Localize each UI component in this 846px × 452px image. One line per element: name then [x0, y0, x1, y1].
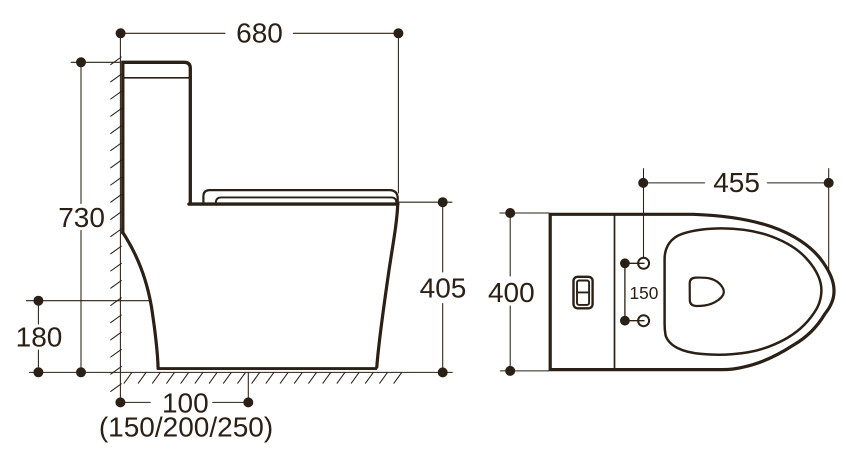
svg-text:680: 680	[236, 18, 283, 49]
svg-text:730: 730	[58, 202, 105, 233]
svg-text:(150/200/250): (150/200/250)	[99, 411, 273, 442]
svg-text:405: 405	[420, 273, 467, 304]
svg-text:455: 455	[713, 167, 760, 198]
svg-text:150: 150	[629, 283, 658, 303]
svg-text:400: 400	[488, 277, 535, 308]
svg-text:180: 180	[16, 322, 63, 353]
